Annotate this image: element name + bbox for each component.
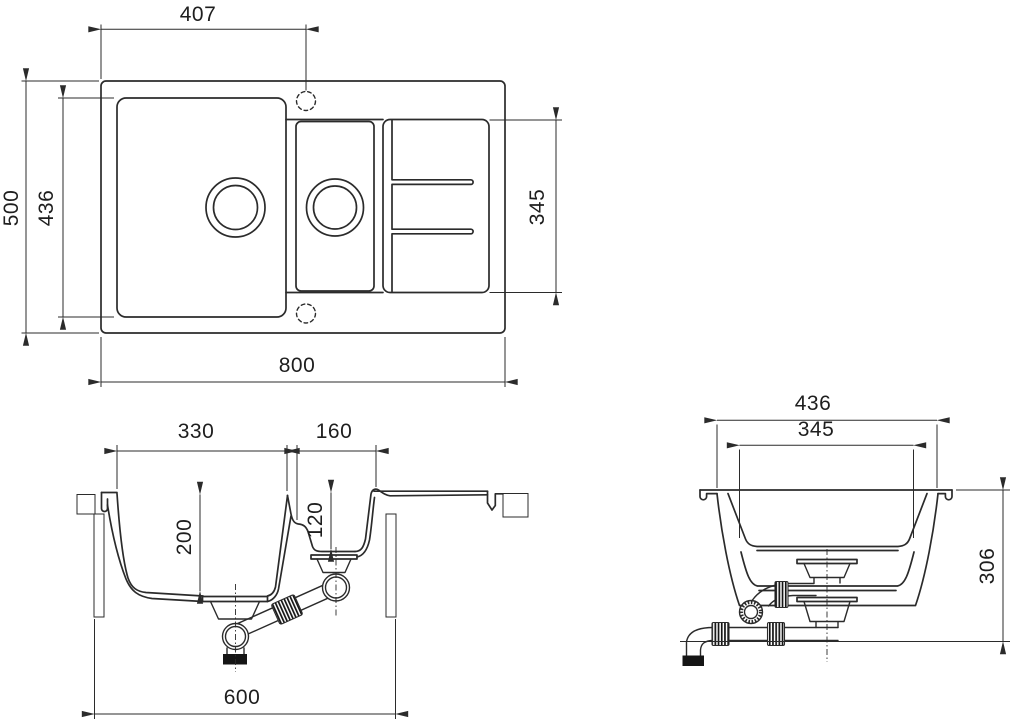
dim-label-faucet-offset: 407	[180, 3, 217, 27]
coupling-lower-1	[712, 623, 729, 646]
sink-technical-drawing: 407 500 436 345 800 330 160 200 120 600 …	[0, 0, 1016, 728]
coupling-lower-2	[768, 623, 785, 646]
rim-lip-right-side	[938, 490, 952, 500]
outer-wall-right	[357, 498, 375, 558]
rim-lip-left-side	[700, 490, 717, 500]
dim-label-drainer-depth: 345	[526, 189, 550, 226]
half-bowl-profile	[728, 494, 927, 551]
half-strainer-cup	[317, 559, 351, 573]
drip-edge-right	[488, 491, 504, 510]
dim-label-half-bowl-width: 160	[316, 420, 353, 444]
dim-label-main-bowl-width: 330	[178, 420, 215, 444]
drawing-linework	[0, 0, 1016, 728]
drainboard	[383, 120, 489, 293]
plan-view	[22, 25, 563, 388]
pipe-coupling-front	[271, 594, 303, 624]
dim-label-overall-width: 800	[279, 354, 316, 378]
counter-cut-right	[503, 494, 528, 518]
front-section-view	[77, 445, 528, 719]
waste-outlet-cap	[683, 656, 704, 666]
main-drain-inner	[214, 186, 258, 230]
half-drain-outer	[307, 179, 364, 236]
half-drain-inner	[314, 186, 357, 229]
dimension-436-plan	[58, 98, 114, 317]
recess-step-lines	[286, 120, 383, 293]
dim-label-bowl-zone-depth: 436	[35, 190, 59, 227]
trap-outlet-cap	[224, 655, 247, 665]
faucet-hole-top	[297, 92, 316, 111]
main-drain-outer	[206, 178, 265, 237]
dim-label-side-inner-width: 345	[798, 418, 835, 442]
main-drain-flange	[203, 597, 268, 602]
dim-label-half-bowl-depth: 120	[304, 502, 328, 539]
dimension-330	[117, 445, 287, 491]
coupling-upper	[775, 582, 788, 608]
dim-label-cabinet-width: 600	[224, 686, 261, 710]
counter-cut-left	[77, 495, 95, 515]
cabinet-panel-right	[386, 514, 396, 617]
rim-lip-left	[102, 493, 108, 512]
main-bowl-profile	[741, 552, 914, 591]
divider-left-face	[268, 496, 292, 602]
dim-label-main-bowl-depth: 200	[173, 519, 197, 556]
main-bowl	[117, 98, 286, 317]
dim-label-side-outer-width: 436	[795, 392, 832, 416]
dim-label-side-height: 306	[976, 548, 1000, 585]
half-bowl	[296, 122, 374, 292]
half-drain-flange	[311, 555, 357, 559]
dim-label-overall-depth: 500	[0, 190, 24, 227]
side-section-view	[680, 420, 1010, 665]
dimension-500	[22, 81, 100, 333]
faucet-hole-bottom	[297, 304, 316, 323]
cabinet-panel-left	[94, 514, 104, 617]
dimension-345-side	[740, 445, 914, 538]
outer-shell	[717, 494, 938, 606]
drainboard-grooves	[392, 121, 473, 292]
